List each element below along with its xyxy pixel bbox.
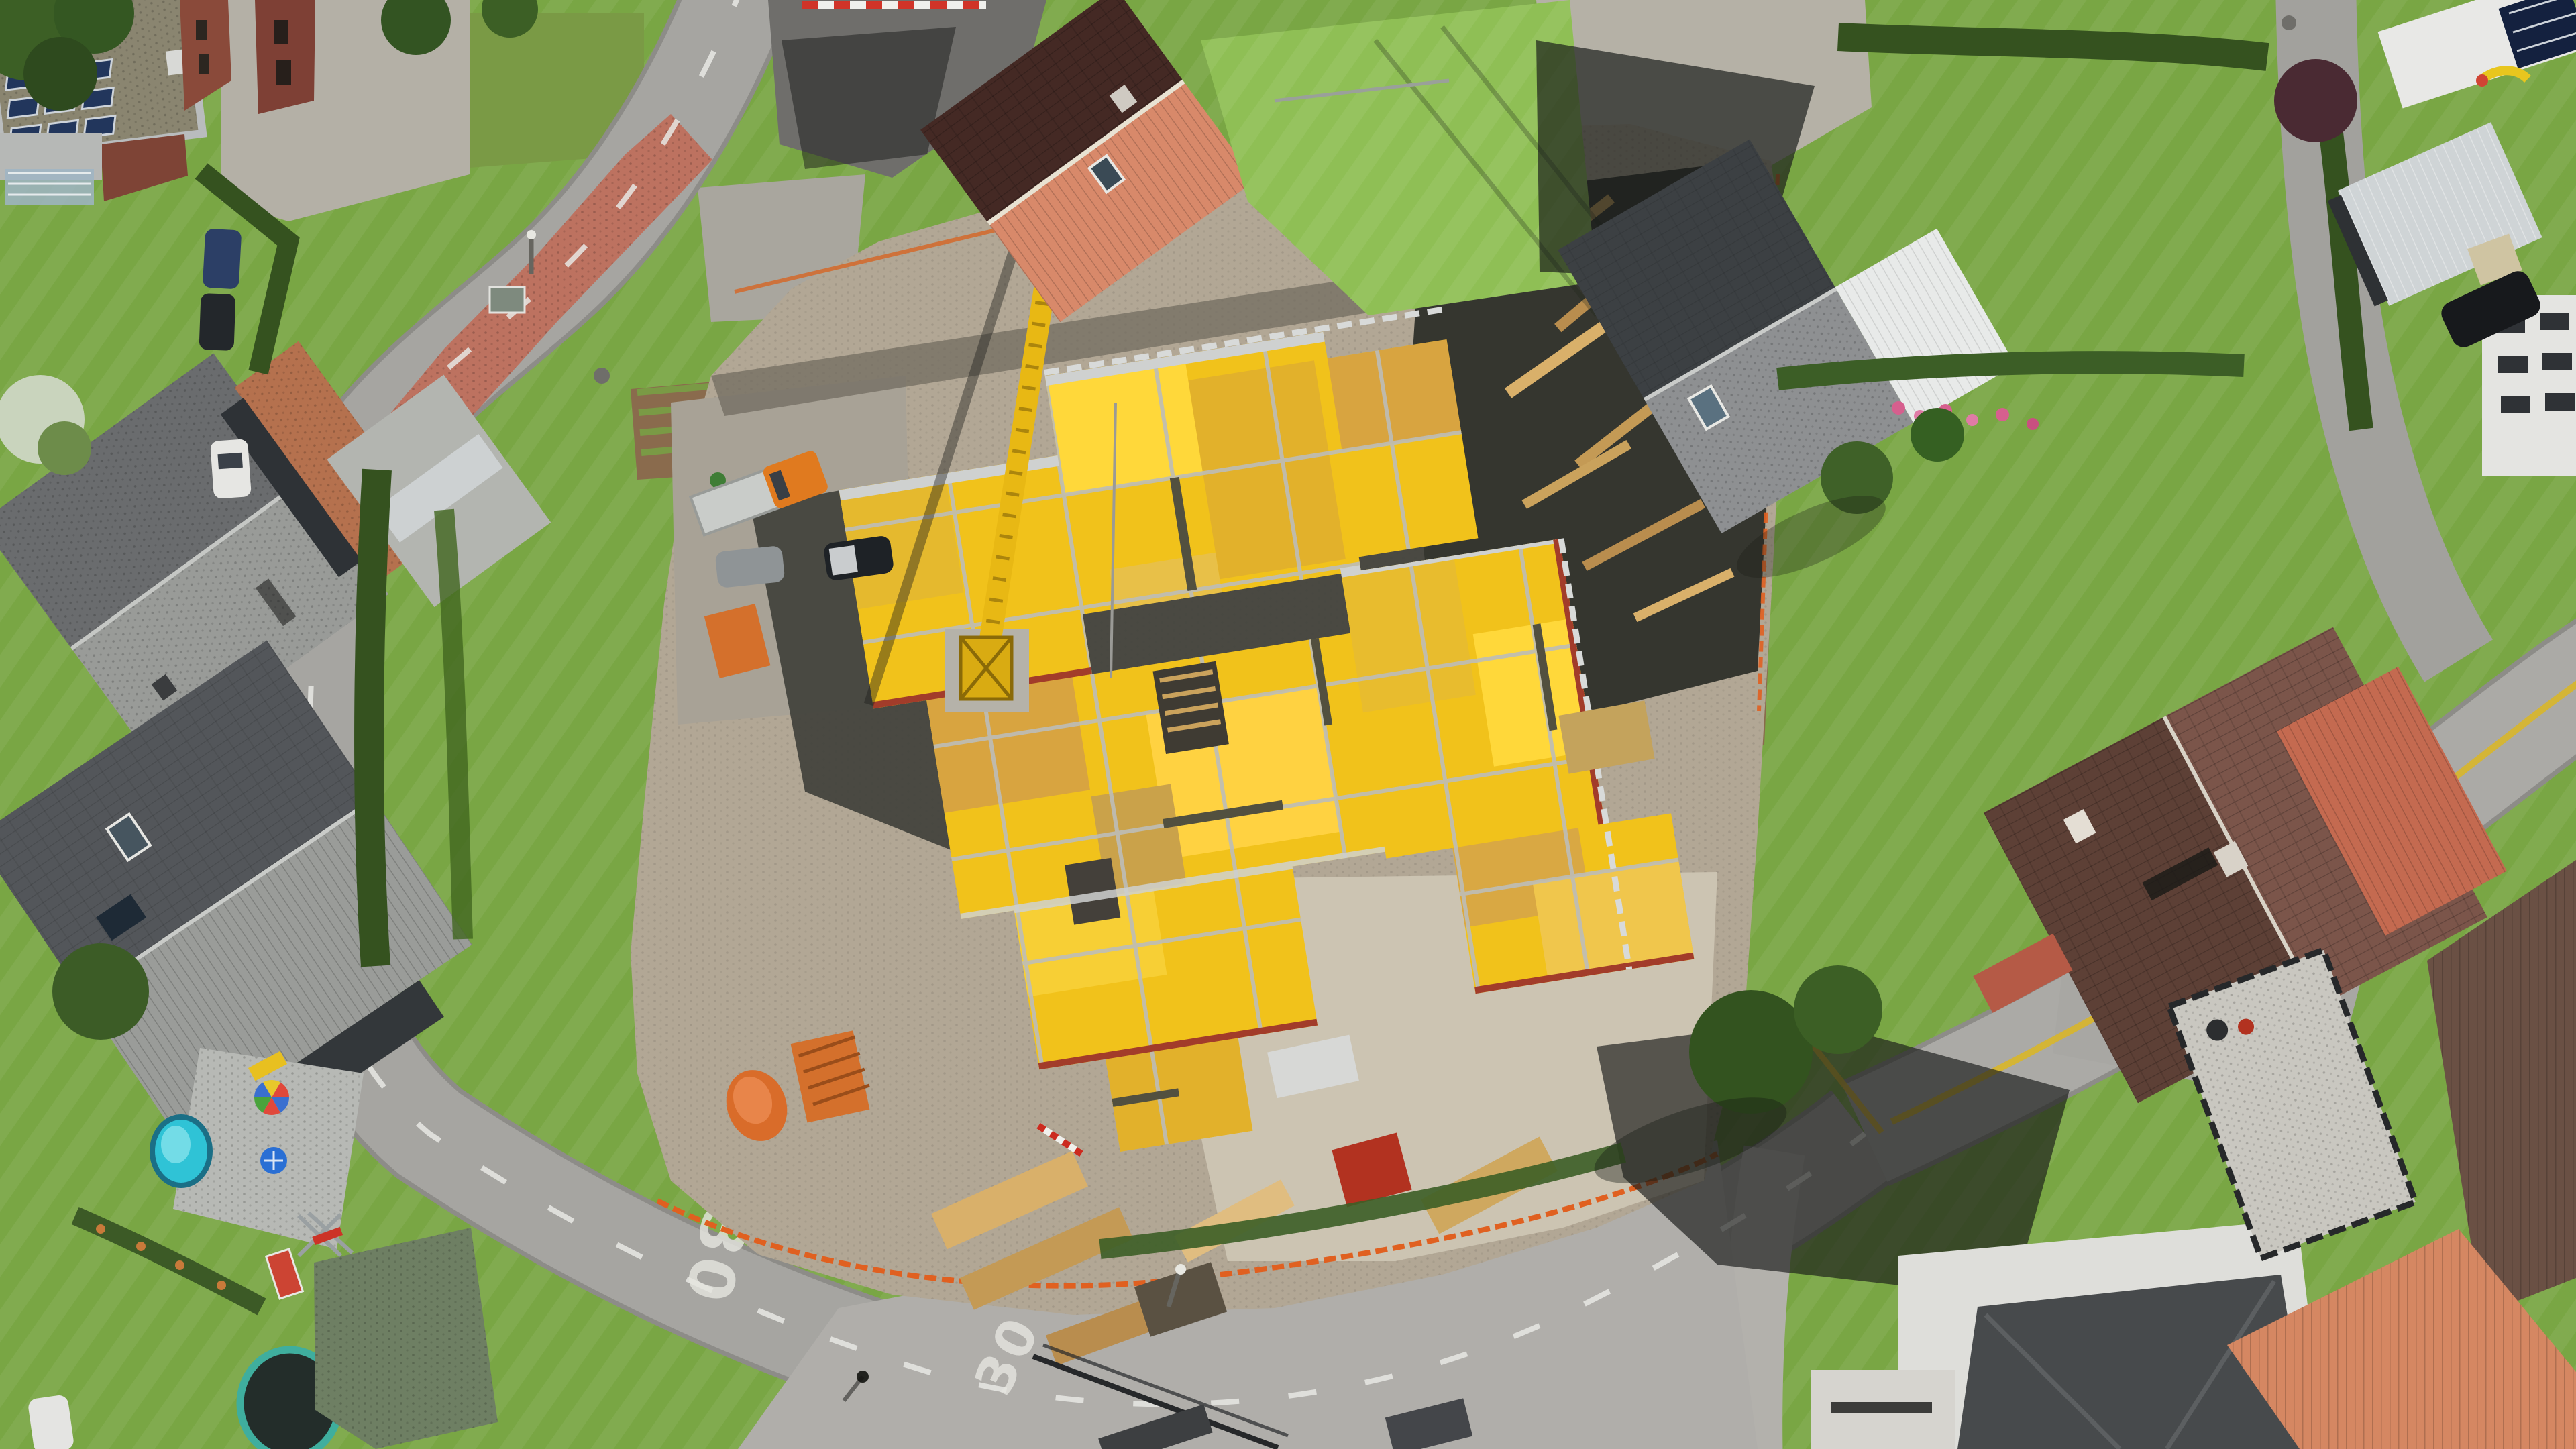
- white-car: [210, 439, 252, 499]
- tree-bottom-left: [52, 943, 149, 1040]
- pool-highlight: [161, 1126, 191, 1163]
- flat-roof-texture: [314, 1228, 498, 1449]
- garage-door: [1831, 1402, 1932, 1413]
- manhole-cover: [594, 368, 610, 384]
- rainbow-parasol: [254, 1080, 289, 1115]
- dark-car: [199, 293, 236, 351]
- lamp-head: [527, 230, 536, 239]
- manhole-cover: [2282, 15, 2296, 30]
- windshield: [217, 453, 242, 469]
- tree: [38, 421, 91, 475]
- glass-canopy: [5, 169, 94, 205]
- dark-blue-car: [203, 229, 242, 290]
- grey-car: [714, 545, 785, 588]
- garden-shed: [490, 287, 525, 313]
- aerial-photo: 30 30: [0, 0, 2576, 1449]
- scene-canvas: 30 30: [0, 0, 2576, 1449]
- brick-wing: [255, 0, 315, 114]
- white-car-bottom-left: [28, 1394, 75, 1449]
- car-roof-highlight: [829, 545, 858, 576]
- purple-leaf-tree: [2274, 59, 2357, 142]
- garden-tree: [1911, 408, 1964, 462]
- street-hedge-west: [369, 470, 377, 966]
- lamp-head: [1175, 1264, 1186, 1275]
